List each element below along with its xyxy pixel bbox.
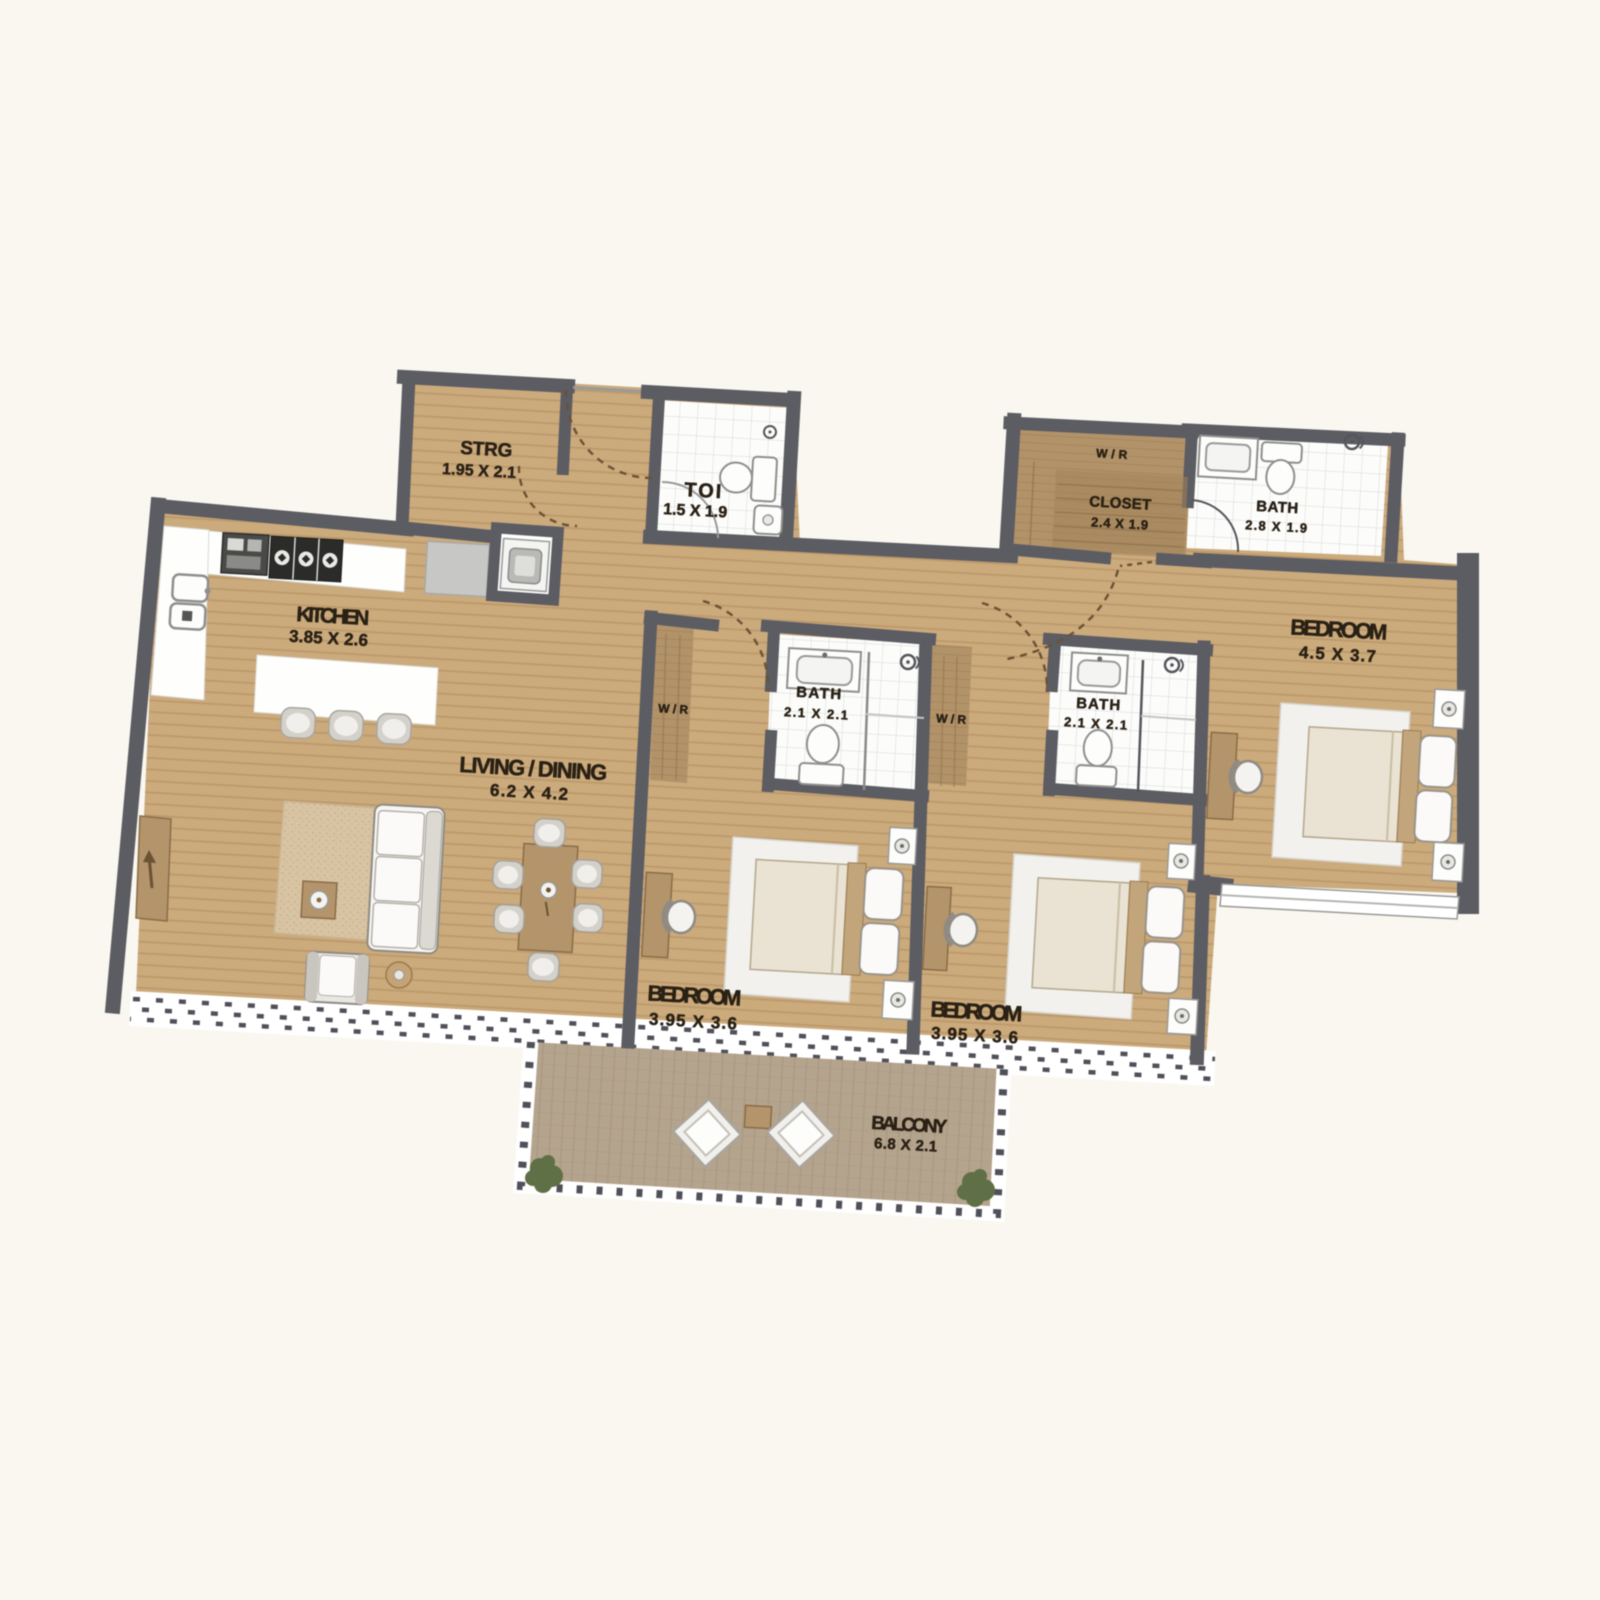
svg-text:BEDROOM: BEDROOM: [930, 996, 1023, 1026]
svg-text:W/R: W/R: [1096, 446, 1128, 462]
svg-text:6.8 X 2.1: 6.8 X 2.1: [874, 1135, 938, 1155]
svg-text:BEDROOM: BEDROOM: [647, 980, 742, 1010]
svg-text:W/R: W/R: [658, 701, 689, 717]
svg-text:STRG: STRG: [460, 438, 513, 462]
svg-text:CLOSET: CLOSET: [1089, 493, 1152, 513]
svg-text:BALCONY: BALCONY: [871, 1113, 948, 1138]
svg-text:1.5 X 1.9: 1.5 X 1.9: [663, 501, 728, 522]
svg-text:BATH: BATH: [1256, 498, 1299, 517]
svg-text:KITCHEN: KITCHEN: [296, 603, 370, 630]
svg-text:W/R: W/R: [936, 711, 967, 727]
svg-text:TOI: TOI: [684, 479, 722, 503]
svg-text:2.4 X 1.9: 2.4 X 1.9: [1091, 514, 1149, 532]
svg-text:BATH: BATH: [1076, 695, 1121, 714]
